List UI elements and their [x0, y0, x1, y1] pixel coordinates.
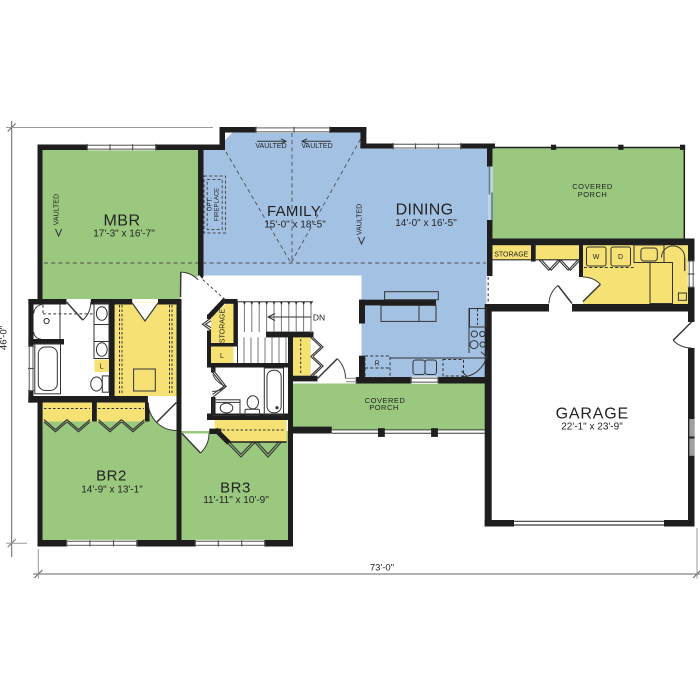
svg-text:DINING: DINING	[396, 202, 454, 219]
svg-text:FIREPLACE: FIREPLACE	[215, 188, 221, 221]
svg-text:W: W	[593, 254, 600, 261]
svg-text:PORCH: PORCH	[578, 190, 608, 199]
svg-text:D: D	[618, 254, 623, 261]
svg-text:17'-3" x 16'-7": 17'-3" x 16'-7"	[93, 228, 155, 239]
svg-text:22'-1" x 23'-9": 22'-1" x 23'-9"	[561, 422, 623, 433]
svg-text:BR3: BR3	[220, 480, 251, 497]
svg-text:46'-0": 46'-0"	[0, 326, 10, 350]
svg-text:R: R	[375, 361, 380, 368]
svg-text:PORCH: PORCH	[369, 403, 399, 412]
svg-text:VAULTED: VAULTED	[301, 143, 332, 150]
svg-text:STORAGE: STORAGE	[494, 252, 528, 259]
svg-text:DN: DN	[313, 312, 325, 322]
svg-text:FAMILY: FAMILY	[267, 203, 321, 220]
svg-text:VAULTED: VAULTED	[255, 143, 286, 150]
svg-text:VAULTED: VAULTED	[357, 204, 364, 235]
svg-text:MBR: MBR	[103, 213, 140, 230]
svg-text:VAULTED: VAULTED	[54, 194, 61, 225]
svg-text:15'-0" x 18'-5": 15'-0" x 18'-5"	[264, 220, 326, 231]
svg-text:OPT.: OPT.	[208, 198, 214, 212]
svg-text:L: L	[100, 364, 104, 371]
svg-text:L: L	[220, 353, 224, 360]
svg-text:14'-9" x 13'-1": 14'-9" x 13'-1"	[81, 485, 143, 496]
svg-text:BR2: BR2	[96, 468, 127, 485]
svg-text:11'-11" x 10'-9": 11'-11" x 10'-9"	[203, 495, 269, 506]
svg-text:GARAGE: GARAGE	[556, 406, 629, 423]
svg-text:73'-0": 73'-0"	[370, 563, 394, 574]
svg-text:14'-0" x 16'-5": 14'-0" x 16'-5"	[395, 218, 457, 229]
